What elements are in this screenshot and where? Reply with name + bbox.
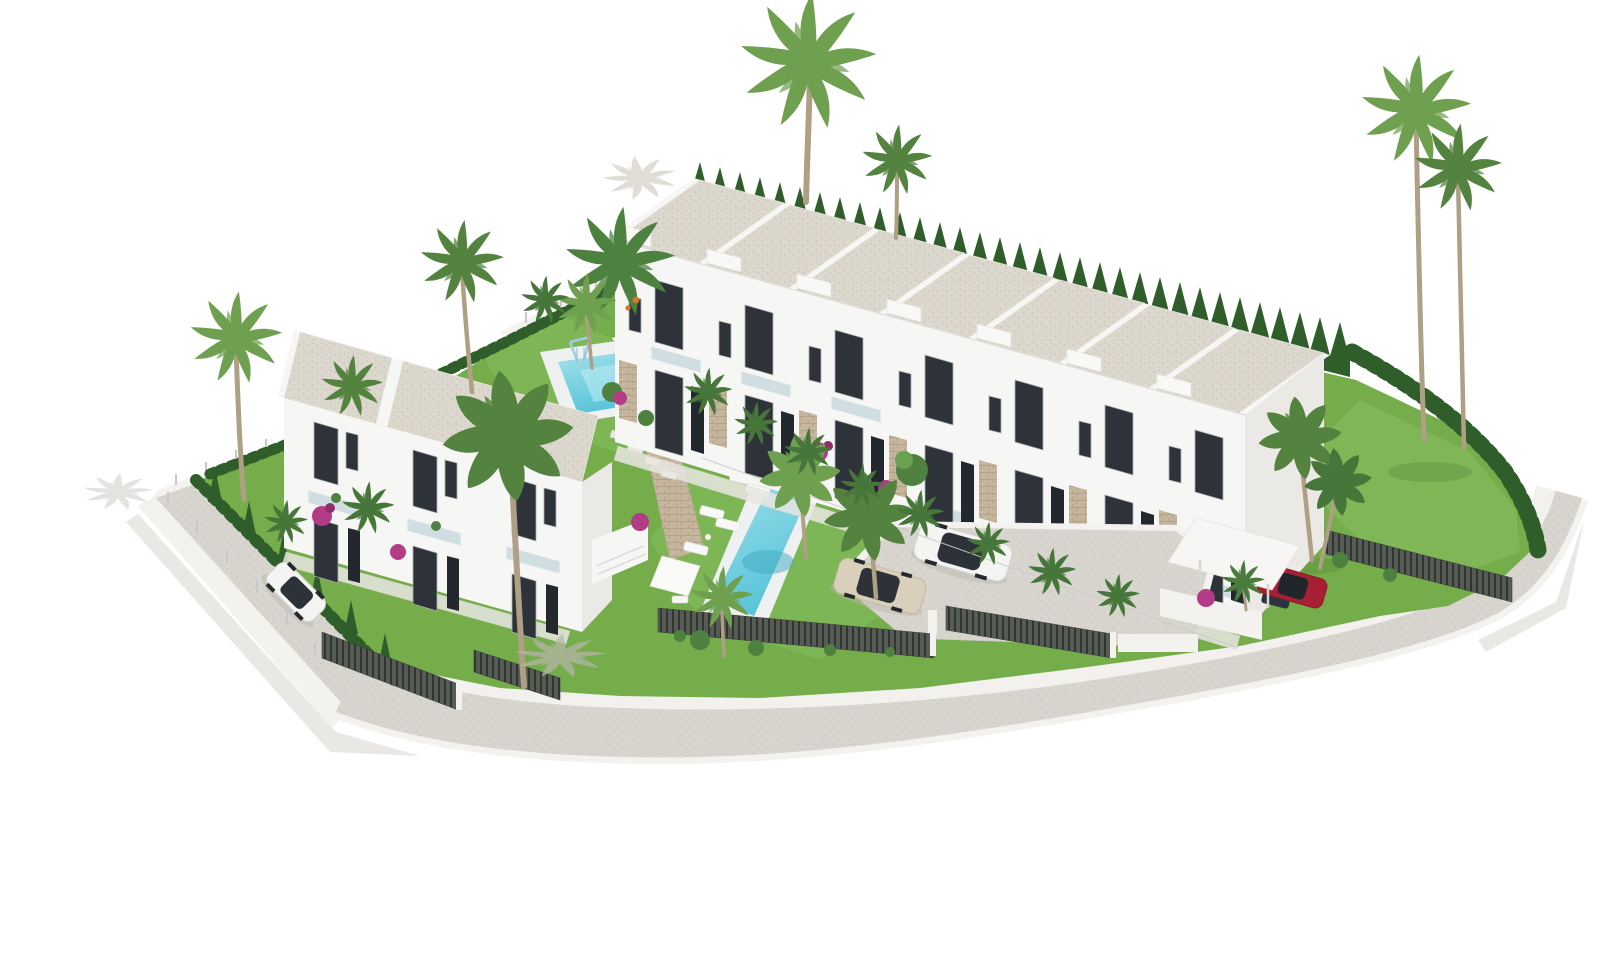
bougainvillea: [613, 391, 627, 405]
window: [1195, 430, 1223, 500]
palm-trunk: [896, 168, 897, 238]
window: [835, 330, 863, 400]
window: [925, 355, 953, 425]
banana-flower: [633, 297, 640, 304]
fence-post: [1110, 632, 1116, 658]
window: [445, 460, 457, 499]
window: [1015, 380, 1043, 450]
window: [346, 432, 358, 471]
palm-trunk: [806, 72, 810, 202]
door: [447, 556, 459, 611]
wall-post: [525, 312, 527, 323]
balcony-plant: [431, 521, 441, 531]
side-table: [705, 534, 711, 540]
bougainvillea: [1197, 589, 1215, 607]
entrance-wall: [1118, 634, 1198, 652]
banana-flower: [625, 305, 630, 310]
window: [745, 305, 773, 375]
window: [989, 396, 1001, 433]
architectural-render: [0, 0, 1600, 960]
window: [655, 370, 683, 456]
fence-post: [930, 630, 936, 656]
door: [348, 528, 360, 583]
render-canvas: Aerial 3D architectural rendering of a w…: [0, 0, 1600, 960]
fence-post: [456, 682, 462, 710]
window: [413, 546, 437, 611]
window: [314, 422, 338, 485]
window: [413, 450, 437, 513]
deck-chair: [672, 596, 688, 603]
bougainvillea: [631, 513, 649, 531]
tree-shadow: [1388, 462, 1472, 482]
window: [719, 321, 731, 358]
window: [1169, 446, 1181, 483]
door: [961, 461, 974, 529]
water-shadow: [742, 550, 794, 574]
door: [546, 584, 558, 635]
window: [314, 518, 338, 583]
window: [655, 280, 683, 350]
window: [544, 488, 556, 527]
bougainvillea: [390, 544, 406, 560]
balcony-plant: [331, 493, 341, 503]
window: [1105, 405, 1133, 475]
window: [809, 346, 821, 383]
window: [1079, 421, 1091, 458]
window: [899, 371, 911, 408]
